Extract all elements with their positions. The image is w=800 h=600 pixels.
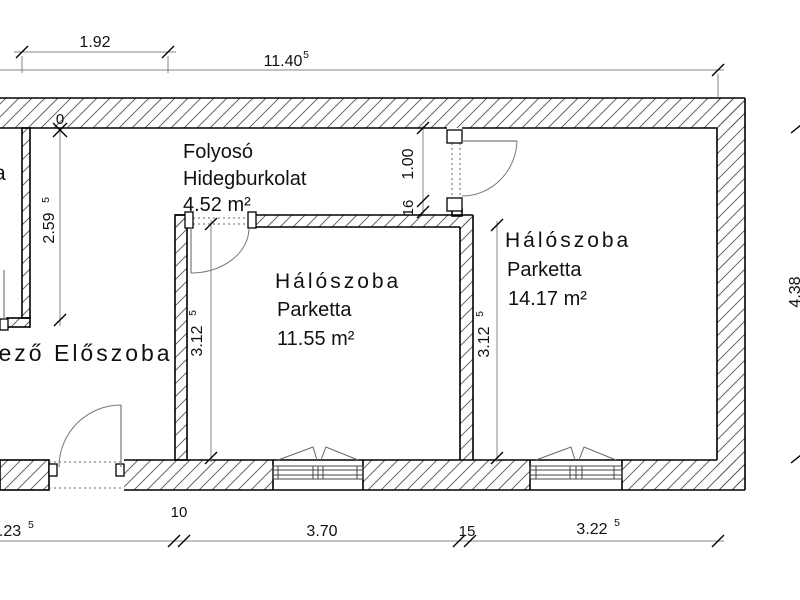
dim-mid-312: 3.12 (189, 325, 206, 356)
jamb-eloszoba-right (116, 464, 124, 476)
dim-322: 3.22 (576, 521, 607, 538)
room-bedroom1-finish: Parketta (277, 299, 352, 321)
dim-100: 1.00 (400, 148, 417, 179)
dim-mid-312-sup: 5 (187, 310, 199, 316)
wall-top (0, 98, 745, 128)
dim-extension-lines (22, 56, 718, 97)
wall-interior-left (22, 128, 30, 318)
door-opening-eloszoba (49, 462, 124, 488)
wall-bottom-seg2 (363, 460, 530, 490)
wall-bottom-left-stub (0, 460, 49, 490)
wall-right (717, 98, 745, 490)
window2-sash-triangles (536, 447, 616, 460)
jamb-corridor-bottom (447, 198, 462, 211)
dim-right-312-sup: 5 (474, 311, 486, 317)
room-folyoso-finish: Hidegburkolat (183, 168, 307, 190)
room-bedroom1-area: 11.55 m² (277, 328, 355, 350)
room-folyoso-name: Folyosó (183, 141, 253, 163)
dim-right-312: 3.12 (476, 326, 493, 357)
wall-bedroom1-left (175, 215, 187, 460)
door-swing-arc-bedroom1 (191, 228, 249, 273)
room-bedroom1-name: Hálószoba (275, 270, 401, 293)
window2-mullions (536, 466, 614, 479)
dim-zero: 0 (56, 111, 64, 128)
dim-370: 3.70 (306, 523, 337, 540)
dim-322-sup: 5 (614, 517, 620, 529)
window1-mullions (278, 466, 357, 479)
door-swing-arc-eloszoba (59, 405, 121, 467)
floor-plan-drawing: 1.92 11.40 5 0 2.59 5 1.00 16 3.12 5 3.1… (0, 0, 800, 600)
dim-423-sup: 5 (28, 519, 34, 531)
room-eloszoba-name: kező Előszoba (0, 340, 173, 366)
wall-bottom-seg1 (124, 460, 273, 490)
room-bedroom2-finish: Parketta (507, 259, 582, 281)
room-folyoso-area: 4.52 m² (183, 194, 251, 216)
door-opening-bedroom1 (193, 218, 248, 224)
room-bedroom2-area: 14.17 m² (508, 288, 587, 310)
wall-interior-left-stub (7, 318, 30, 327)
dim-423: 4.23 (0, 523, 21, 540)
door-openings (49, 143, 460, 488)
dim-10: 10 (171, 504, 188, 521)
dim-1140: 11.40 (264, 53, 303, 70)
room-cut-left-letter: a (0, 162, 6, 185)
dim-259-sup: 5 (40, 197, 52, 203)
dim-438: 4.38 (787, 276, 800, 307)
jamb-left-edge (0, 319, 8, 330)
door-swing-arc-corridor (462, 141, 517, 196)
jamb-eloszoba-left (49, 464, 57, 476)
wall-bottom-seg3 (622, 460, 745, 490)
room-labels: Folyosó Hidegburkolat 4.52 m² Hálószoba … (0, 141, 631, 366)
window1-sash-triangles (278, 447, 358, 460)
dim-15: 15 (459, 523, 476, 540)
dim-1140-sup: 5 (303, 49, 309, 61)
room-bedroom2-name: Hálószoba (505, 229, 631, 252)
wall-bedroom1-top-b (248, 215, 473, 227)
dim-192: 1.92 (79, 34, 110, 51)
door-opening-corridor (452, 143, 460, 198)
jamb-corridor-top (447, 130, 462, 143)
wall-bedroom-divider (460, 215, 473, 460)
floor-plan-canvas: 1.92 11.40 5 0 2.59 5 1.00 16 3.12 5 3.1… (0, 0, 800, 600)
dim-16: 16 (400, 200, 417, 217)
dim-259: 2.59 (41, 212, 58, 243)
wall-outlines (0, 98, 745, 490)
walls-hatched (0, 98, 745, 490)
